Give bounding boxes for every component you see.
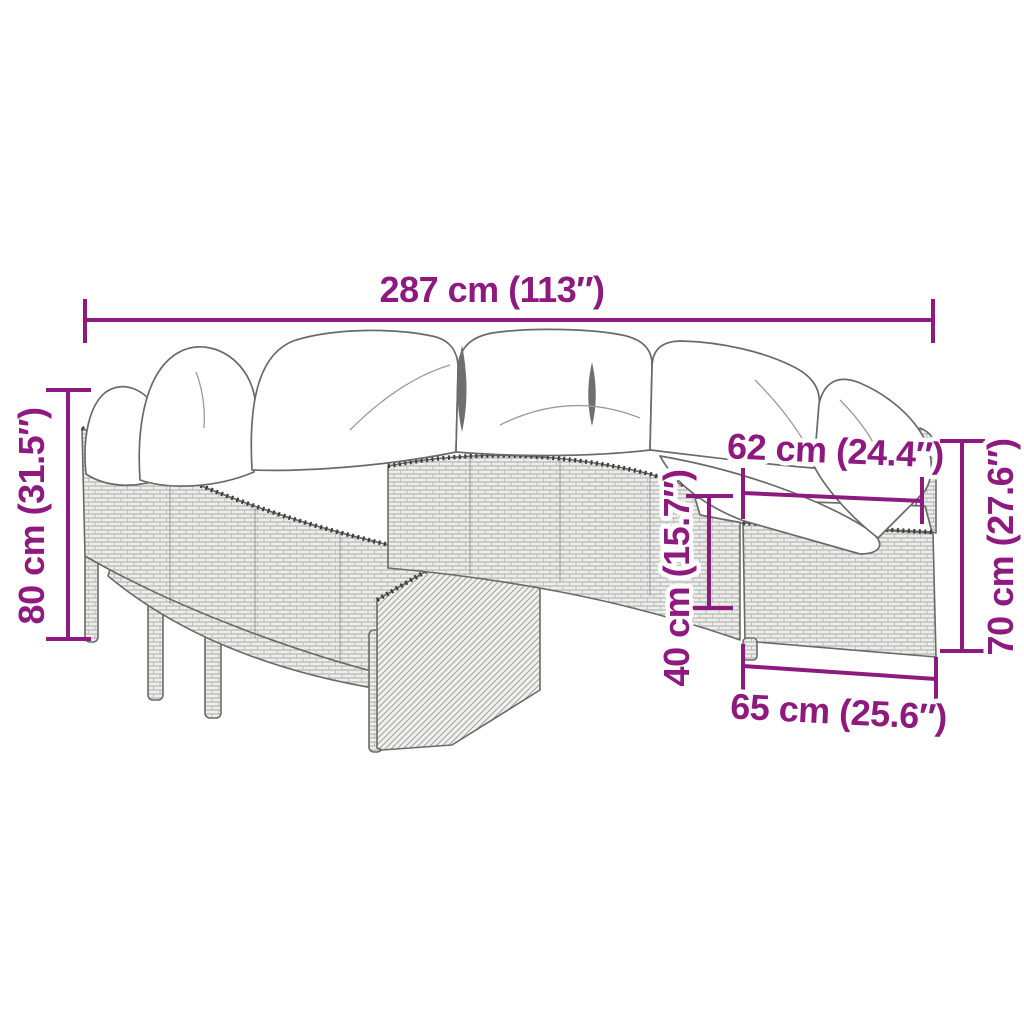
dim-seat-height-label: 40 cm (15.7″) [656, 470, 697, 687]
product-dimension-diagram: 287 cm (113″) 80 cm (31.5″) 62 cm (24.4″… [0, 0, 1024, 1024]
dim-module-depth: 65 cm (25.6″) [729, 644, 948, 738]
dim-total-height: 80 cm (31.5″) [11, 390, 91, 639]
back-cushion [456, 329, 652, 455]
dim-total-width-label: 287 cm (113″) [380, 269, 605, 310]
diagram-svg: 287 cm (113″) 80 cm (31.5″) 62 cm (24.4″… [0, 0, 1024, 1024]
dim-total-height-label: 80 cm (31.5″) [11, 408, 52, 625]
dim-module-height-label: 70 cm (27.6″) [980, 439, 1021, 656]
back-cushion [139, 347, 256, 486]
dim-module-height: 70 cm (27.6″) [940, 439, 1021, 656]
ottoman-foot [743, 638, 757, 660]
sofa-leg [85, 552, 98, 642]
dim-module-depth-label: 65 cm (25.6″) [729, 685, 948, 737]
back-cushion [251, 330, 458, 470]
